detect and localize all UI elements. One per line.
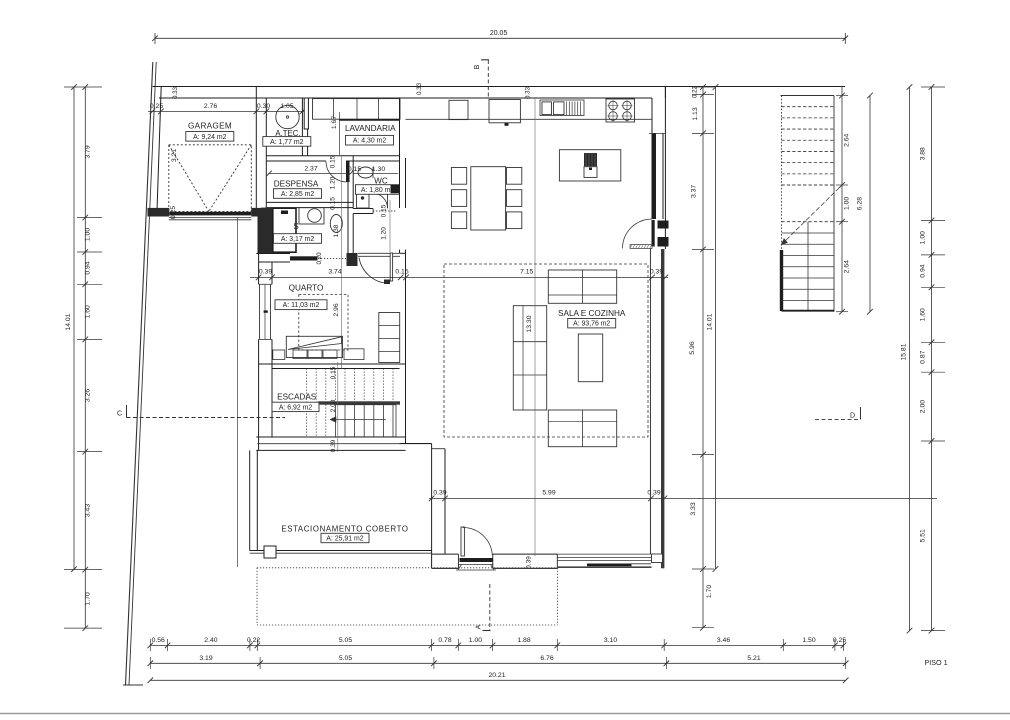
svg-text:1.38: 1.38 [333, 224, 340, 237]
svg-text:3.79: 3.79 [85, 145, 92, 158]
svg-text:0.15: 0.15 [395, 268, 408, 275]
svg-text:D: D [850, 413, 855, 420]
svg-text:1.00: 1.00 [85, 228, 92, 241]
svg-text:A: 9,24 m2: A: 9,24 m2 [193, 134, 226, 141]
svg-text:0.94: 0.94 [920, 264, 927, 277]
svg-text:A: 6,92 m2: A: 6,92 m2 [279, 404, 312, 411]
svg-text:ESTACIONAMENTO COBERTO: ESTACIONAMENTO COBERTO [281, 524, 408, 533]
svg-text:2.96: 2.96 [333, 303, 340, 316]
svg-text:A: 25,91 m2: A: 25,91 m2 [326, 536, 363, 543]
svg-text:5.05: 5.05 [339, 655, 352, 662]
svg-text:WC: WC [374, 177, 388, 186]
svg-text:QUARTO: QUARTO [289, 283, 324, 292]
svg-text:1.20: 1.20 [330, 176, 337, 189]
svg-text:0.25: 0.25 [833, 637, 846, 644]
svg-text:1.30: 1.30 [372, 166, 385, 173]
svg-text:0.94: 0.94 [85, 261, 92, 274]
svg-text:0.87: 0.87 [920, 350, 927, 363]
svg-text:0.25: 0.25 [150, 103, 163, 110]
svg-text:3.37: 3.37 [691, 185, 698, 198]
svg-text:A: 1,77 m2: A: 1,77 m2 [270, 139, 303, 146]
svg-text:1.60: 1.60 [920, 308, 927, 321]
svg-text:1.70: 1.70 [706, 585, 713, 598]
svg-text:0.33: 0.33 [172, 86, 179, 99]
svg-text:0.39: 0.39 [526, 556, 533, 569]
svg-text:0.15: 0.15 [330, 155, 337, 168]
svg-text:2.00: 2.00 [330, 399, 337, 412]
svg-text:DESPENSA: DESPENSA [274, 180, 319, 189]
svg-text:1.67: 1.67 [331, 116, 338, 129]
svg-text:B: B [474, 64, 481, 69]
svg-text:3.19: 3.19 [199, 655, 212, 662]
svg-text:A: 11,03 m2: A: 11,03 m2 [283, 302, 320, 309]
svg-text:0.39: 0.39 [433, 489, 446, 496]
svg-text:2.40: 2.40 [204, 637, 217, 644]
svg-text:GARAGEM: GARAGEM [188, 122, 232, 131]
svg-text:5.96: 5.96 [689, 341, 696, 354]
svg-text:0.39: 0.39 [647, 489, 660, 496]
svg-text:A: 1,80 m2: A: 1,80 m2 [361, 187, 394, 194]
svg-text:0.39: 0.39 [259, 268, 272, 275]
svg-text:2.76: 2.76 [204, 103, 217, 110]
svg-text:2.37: 2.37 [304, 165, 317, 172]
svg-text:3.74: 3.74 [328, 268, 341, 275]
svg-text:20.21: 20.21 [488, 672, 505, 679]
svg-text:5.05: 5.05 [339, 637, 352, 644]
svg-text:1.88: 1.88 [517, 637, 530, 644]
svg-text:ESCADAS: ESCADAS [277, 393, 317, 402]
svg-text:0.33: 0.33 [525, 86, 532, 99]
svg-text:A: 2,85 m2: A: 2,85 m2 [281, 191, 314, 198]
svg-text:3.88: 3.88 [920, 147, 927, 160]
svg-text:3.26: 3.26 [85, 389, 92, 402]
svg-text:5.99: 5.99 [542, 489, 555, 496]
svg-text:0,25: 0,25 [170, 206, 177, 219]
svg-text:14.01: 14.01 [65, 313, 72, 330]
svg-text:6.76: 6.76 [540, 655, 553, 662]
svg-text:2.64: 2.64 [843, 133, 850, 146]
svg-text:3.43: 3.43 [85, 504, 92, 517]
svg-text:5.51: 5.51 [920, 529, 927, 542]
svg-text:13.30: 13.30 [526, 315, 533, 332]
svg-text:0.15: 0.15 [330, 197, 337, 210]
svg-text:1.60: 1.60 [85, 305, 92, 318]
svg-text:3.46: 3.46 [717, 637, 730, 644]
svg-text:PISO 1: PISO 1 [924, 658, 947, 667]
svg-text:6.28: 6.28 [857, 197, 864, 210]
svg-text:0.78: 0.78 [438, 637, 451, 644]
svg-text:3.10: 3.10 [604, 637, 617, 644]
svg-text:2.00: 2.00 [920, 400, 927, 413]
svg-text:S: S [293, 222, 299, 231]
svg-text:A: 4,30 m2: A: 4,30 m2 [353, 138, 386, 145]
svg-text:0.56: 0.56 [152, 637, 165, 644]
svg-text:A: 93,76 m2: A: 93,76 m2 [573, 321, 610, 328]
svg-text:0.30: 0.30 [257, 103, 270, 110]
svg-text:0.39: 0.39 [330, 439, 337, 452]
svg-text:0.15: 0.15 [381, 204, 388, 217]
svg-text:1.70: 1.70 [85, 592, 92, 605]
svg-text:14.01: 14.01 [707, 313, 714, 330]
svg-text:1.50: 1.50 [802, 637, 815, 644]
svg-text:A: 3,17 m2: A: 3,17 m2 [281, 236, 314, 243]
svg-text:SALA E COZINHA: SALA E COZINHA [558, 309, 626, 318]
svg-text:1.00: 1.00 [920, 231, 927, 244]
svg-text:0.15: 0.15 [330, 366, 337, 379]
svg-text:1.00: 1.00 [843, 197, 850, 210]
svg-text:1.13: 1.13 [692, 107, 699, 120]
svg-text:LAVANDARIA: LAVANDARIA [345, 124, 396, 133]
svg-text:0,20: 0,20 [316, 252, 323, 265]
svg-text:3.33: 3.33 [690, 502, 697, 515]
svg-text:0.22: 0.22 [247, 637, 260, 644]
svg-text:1.20: 1.20 [381, 227, 388, 240]
svg-text:0.39: 0.39 [650, 268, 663, 275]
svg-text:C: C [117, 411, 122, 418]
svg-text:7.15: 7.15 [520, 268, 533, 275]
svg-text:1.00: 1.00 [469, 637, 482, 644]
svg-text:20.05: 20.05 [490, 30, 508, 37]
svg-text:2.64: 2.64 [843, 260, 850, 273]
svg-text:0.33: 0.33 [416, 82, 423, 95]
svg-text:5.21: 5.21 [747, 655, 760, 662]
svg-text:3,21: 3,21 [171, 149, 178, 162]
svg-text:15.81: 15.81 [901, 343, 908, 360]
